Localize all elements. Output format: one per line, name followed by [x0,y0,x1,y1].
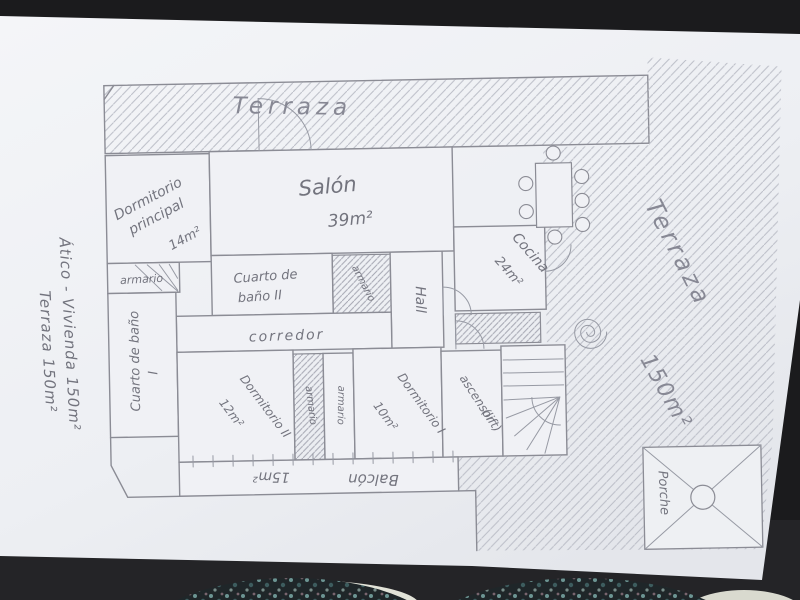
label-bano1-2: I [146,371,161,375]
label-armario-entrada: armario [120,272,164,287]
label-hall: Hall [412,286,429,313]
room-ascensor [441,350,503,457]
label-porche: Porche [655,470,672,515]
area-balcon: 15m² [252,468,290,485]
chair-icon [519,204,533,218]
label-bano1-1: Cuarto de baño [127,311,144,412]
room-salon [209,147,454,256]
room-stairs [501,345,567,456]
area-salon: 39m² [327,208,374,232]
label-corredor: corredor [249,327,325,346]
chair-icon [546,146,560,160]
chair-icon [575,217,589,231]
label-balcon: Balcón [348,470,399,489]
room-bano2 [211,253,333,315]
room-bano1 [108,292,179,437]
photo-of-floor-plan: Terraza Dormitorio principal 14m² Salón … [0,0,800,600]
label-bano2-2: baño II [237,288,282,306]
label-armario-pasillo2: armario [335,386,347,425]
chair-icon [575,169,589,183]
hatched-strip [455,312,541,344]
terraza-top-zone [104,75,649,153]
chair-icon [575,193,589,207]
chair-icon [548,230,562,244]
label-terraza-top: Terraza [232,93,352,121]
chair-icon [519,176,533,190]
room-balcon [179,457,459,496]
